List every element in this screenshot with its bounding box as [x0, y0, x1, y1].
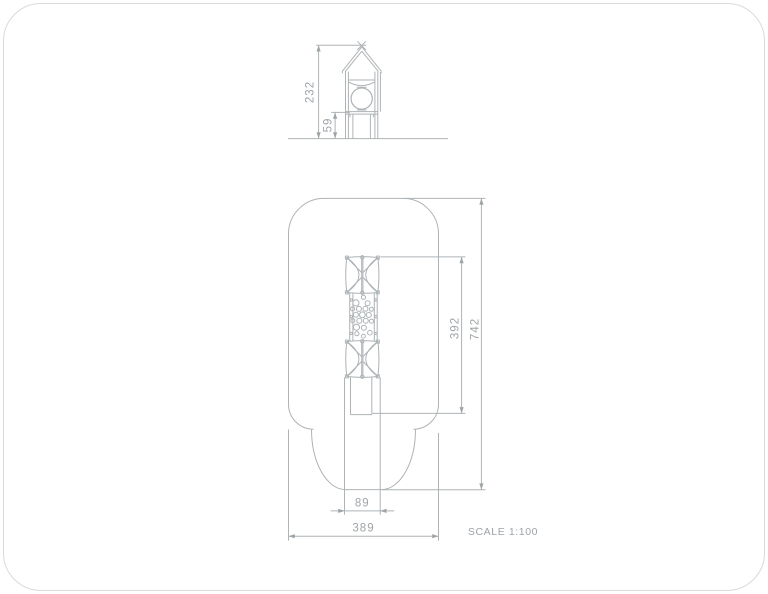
scale-label: SCALE 1:100 [468, 526, 538, 537]
dim-label-total-height: 232 [306, 81, 318, 103]
tower-roof-ridge [362, 257, 363, 293]
roof-elevation [342, 47, 381, 73]
tower-roof-hip-edges [347, 258, 378, 293]
dim-tower-width [331, 378, 395, 515]
bridge-bubbles [350, 295, 377, 338]
dim-tower-width-lines [331, 378, 395, 515]
dim-label-zone-width: 389 [352, 523, 374, 535]
arrow-up-icon [317, 45, 321, 51]
porthole-tube-elevation [351, 88, 372, 109]
dim-label-equipment-length: 392 [450, 317, 462, 339]
dim-zone-length [382, 198, 486, 489]
arrow-left-icon [289, 534, 295, 538]
dim-label-tower-width: 89 [355, 498, 370, 510]
tower-roof-plan-bottom [345, 340, 379, 379]
tower-elevation [342, 41, 381, 138]
drawing-sheet: 232 59 392 742 89 389 SCALE 1:100 [0, 0, 768, 594]
tower-sag-curve [348, 82, 374, 86]
arrow-up-icon [460, 257, 464, 263]
arrow-right-icon [338, 509, 344, 513]
dim-zone-length-lines [382, 198, 486, 489]
tube-mount-tabs [357, 87, 367, 110]
safety-zone-outline [289, 198, 439, 489]
dim-label-zone-length: 742 [470, 318, 482, 340]
arrow-down-icon [460, 407, 464, 413]
arrow-right-icon [432, 534, 438, 538]
platform-elevation [346, 112, 378, 115]
arrow-up-icon [479, 198, 483, 204]
arrow-down-icon [333, 132, 337, 138]
drawing-canvas [0, 0, 768, 594]
arrow-down-icon [317, 132, 321, 138]
bubble-bridge-plan [350, 293, 378, 341]
slide-plan [351, 377, 372, 414]
arrow-down-icon [479, 483, 483, 489]
dim-label-platform-height: 59 [324, 118, 336, 133]
slide-plan-outline [351, 377, 372, 414]
tower-posts-elevation [346, 71, 381, 138]
tower-roof-plan [345, 256, 379, 295]
arrow-left-icon [380, 509, 386, 513]
platform-supports [350, 114, 373, 139]
plan-view [289, 198, 486, 540]
